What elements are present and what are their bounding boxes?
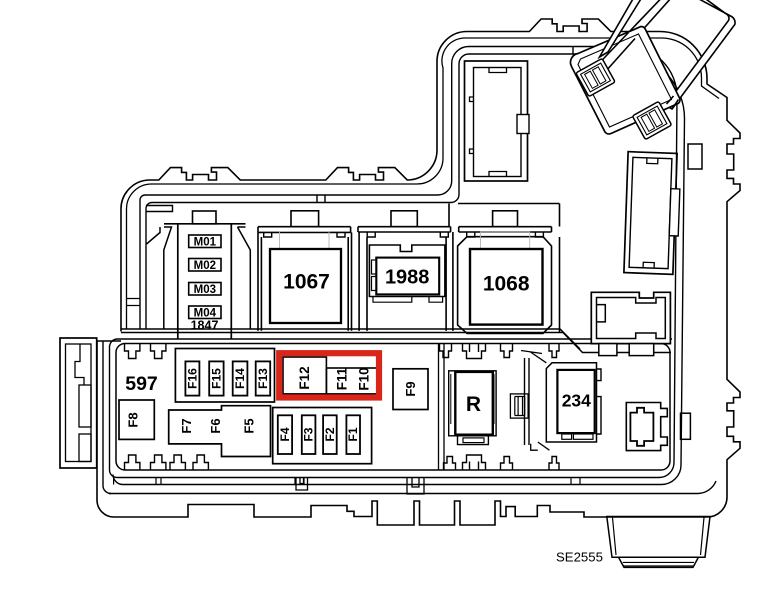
svg-text:F2: F2 (323, 427, 337, 441)
svg-text:R: R (466, 393, 481, 416)
svg-text:M02: M02 (194, 260, 216, 272)
svg-text:M01: M01 (194, 237, 217, 249)
svg-text:597: 597 (125, 373, 158, 395)
svg-text:1068: 1068 (483, 273, 530, 296)
svg-text:F6: F6 (208, 418, 223, 433)
svg-text:F11: F11 (334, 367, 349, 390)
svg-text:F3: F3 (302, 427, 316, 441)
svg-text:F7: F7 (179, 418, 194, 433)
svg-text:F10: F10 (356, 367, 371, 390)
svg-text:1847: 1847 (191, 319, 219, 333)
svg-text:F1: F1 (346, 427, 360, 441)
svg-text:234: 234 (562, 391, 591, 411)
svg-text:1067: 1067 (283, 271, 330, 294)
svg-text:F5: F5 (242, 418, 257, 433)
svg-text:F16: F16 (185, 368, 199, 389)
svg-text:SE2555: SE2555 (556, 550, 603, 565)
svg-text:F15: F15 (209, 368, 223, 389)
svg-text:F4: F4 (278, 427, 292, 441)
svg-text:F13: F13 (256, 368, 270, 389)
svg-text:M03: M03 (194, 284, 216, 296)
svg-text:F9: F9 (403, 381, 418, 396)
svg-text:F14: F14 (233, 368, 247, 389)
svg-text:1988: 1988 (385, 267, 430, 289)
svg-text:F12: F12 (297, 366, 312, 389)
svg-text:F8: F8 (126, 412, 141, 427)
